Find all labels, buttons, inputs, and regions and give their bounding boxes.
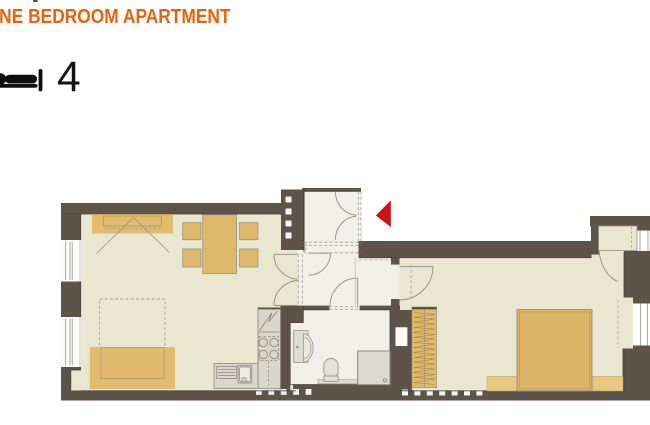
svg-text:4: 4 [57,54,81,101]
svg-text:ONE BEDROOM APARTMENT: ONE BEDROOM APARTMENT [0,5,231,27]
